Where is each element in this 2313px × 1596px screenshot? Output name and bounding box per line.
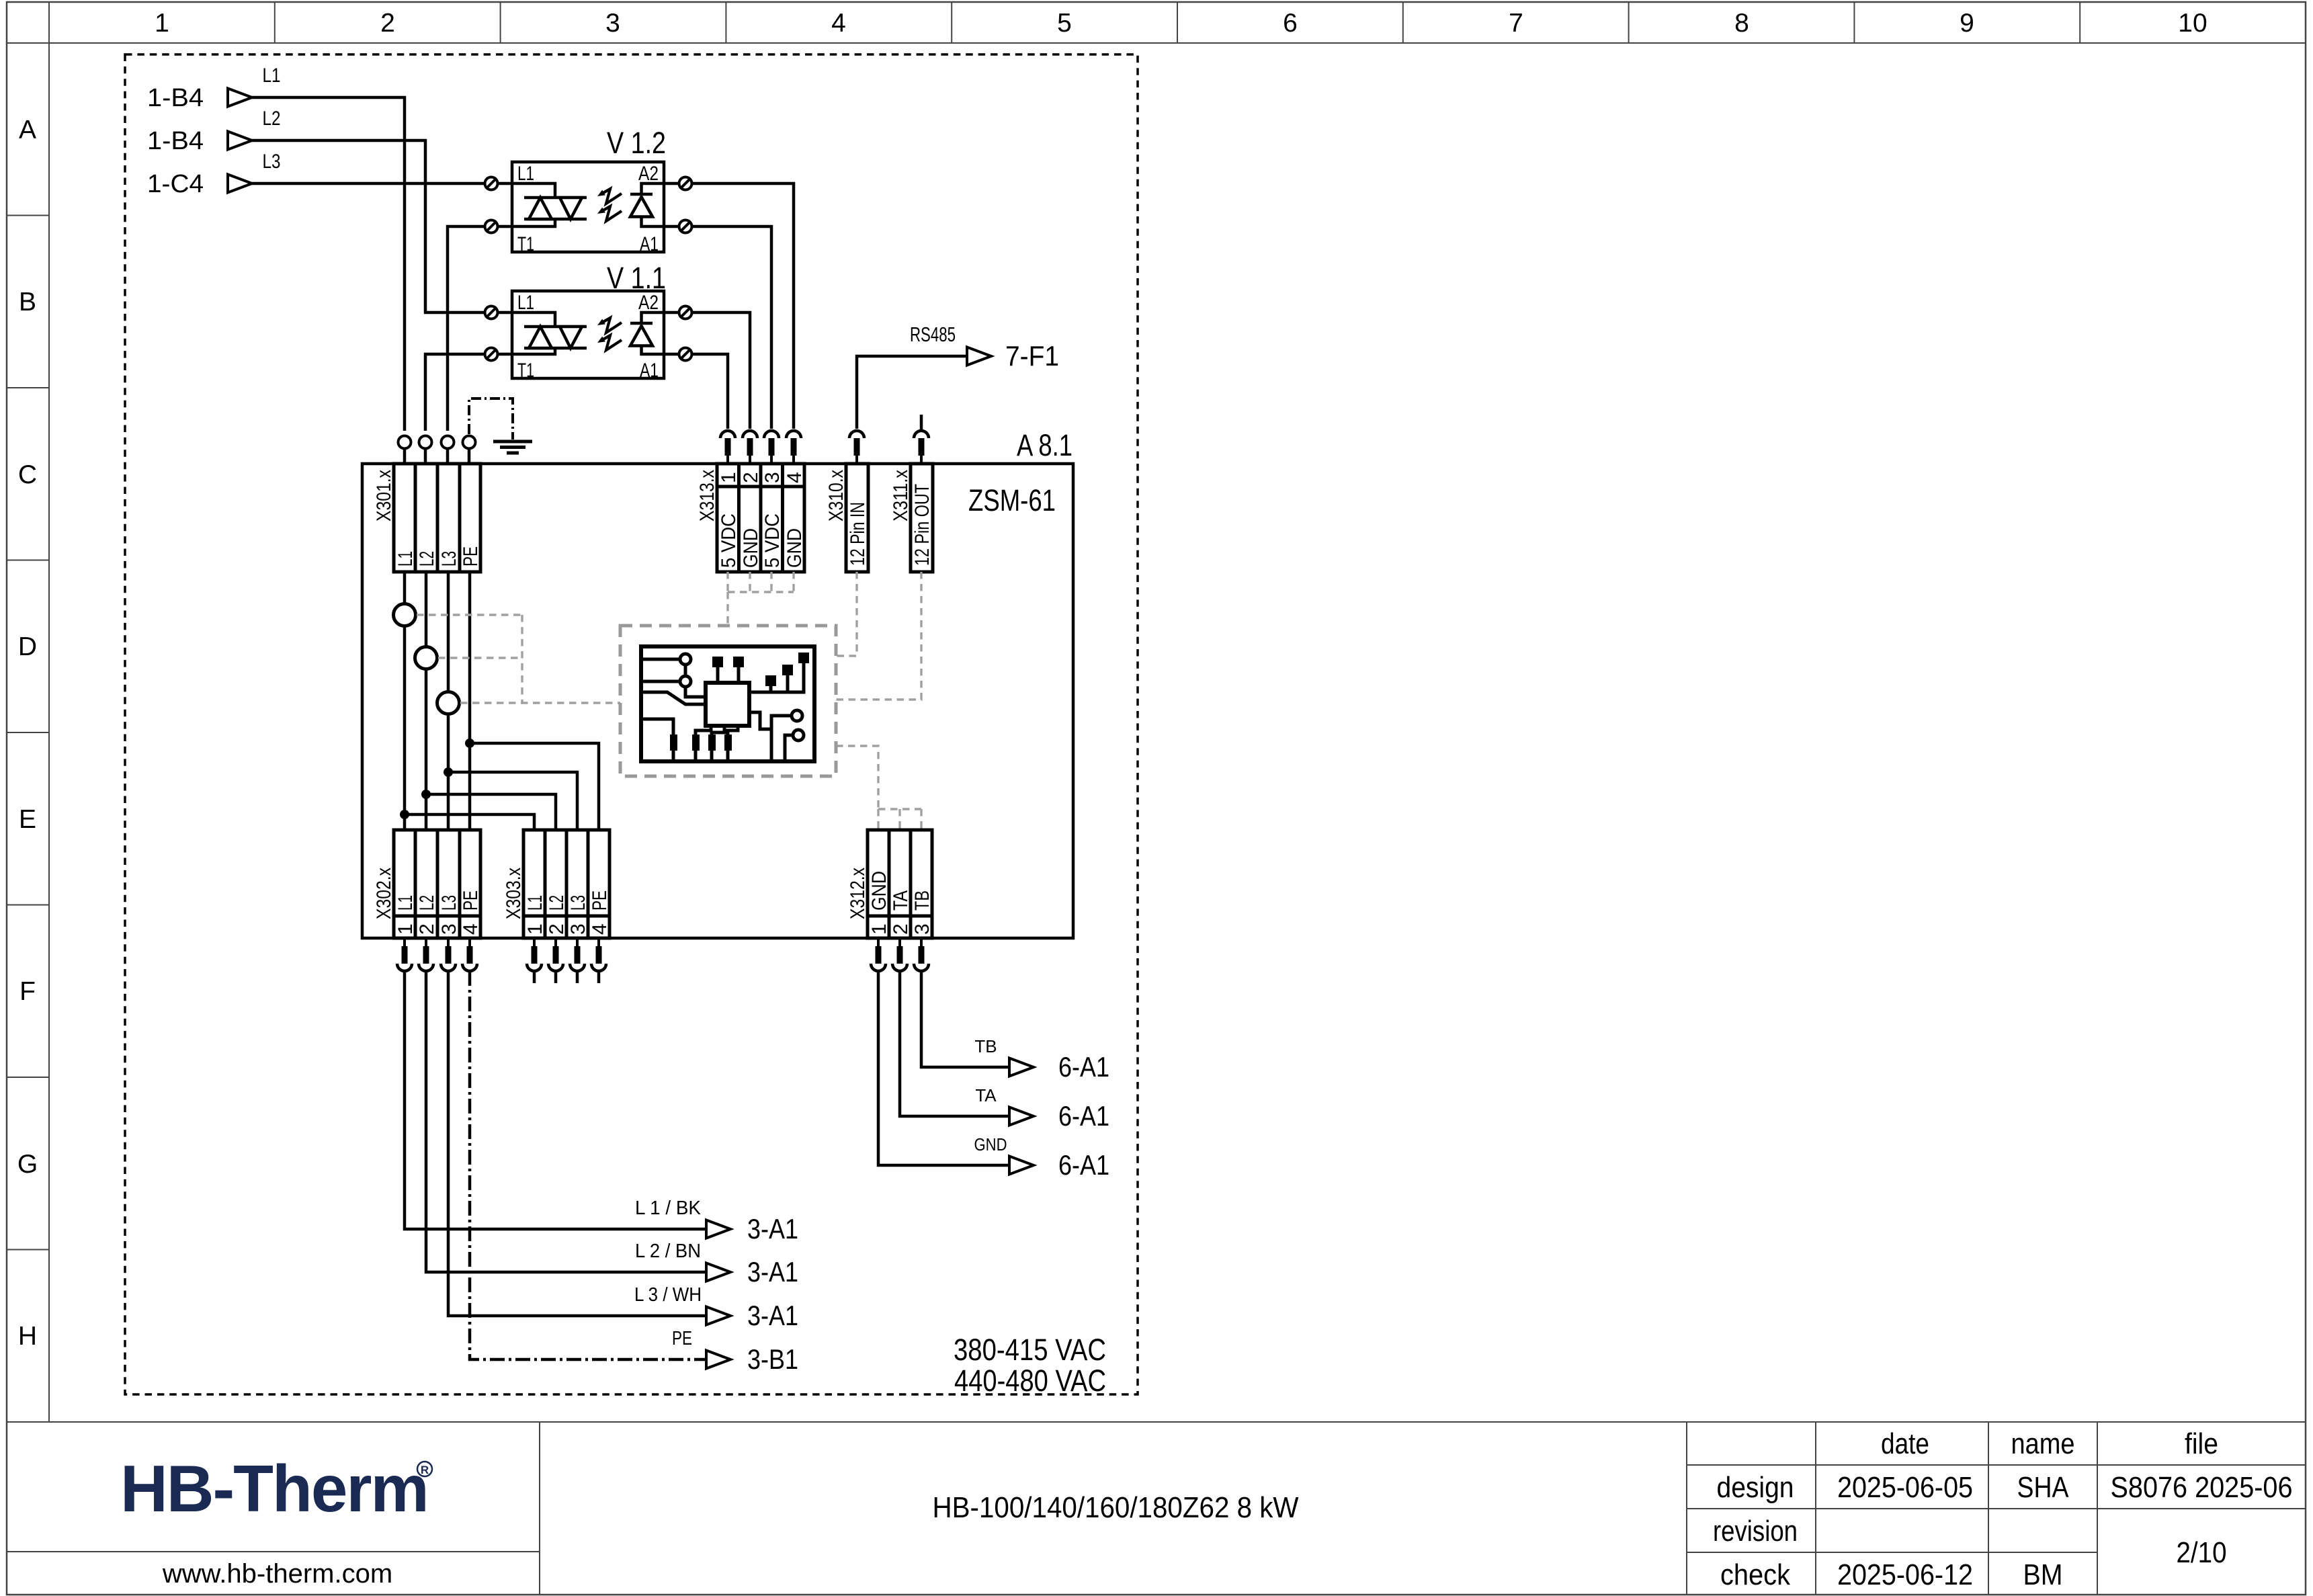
svg-text:BM: BM — [2023, 1558, 2063, 1591]
svg-text:revision: revision — [1713, 1515, 1798, 1548]
svg-text:B: B — [19, 288, 36, 317]
svg-text:2/10: 2/10 — [2177, 1536, 2227, 1569]
svg-text:X301.x: X301.x — [373, 470, 395, 521]
svg-text:1: 1 — [155, 9, 169, 38]
svg-text:1-B4: 1-B4 — [147, 127, 204, 155]
svg-text:L3: L3 — [438, 895, 460, 911]
svg-text:9: 9 — [1960, 9, 1974, 38]
svg-text:3: 3 — [438, 923, 460, 935]
svg-text:SHA: SHA — [2017, 1471, 2070, 1504]
svg-text:L2: L2 — [263, 108, 281, 130]
svg-text:GND: GND — [974, 1134, 1007, 1154]
svg-text:L1: L1 — [517, 163, 534, 185]
svg-text:A 8.1: A 8.1 — [1017, 428, 1073, 462]
svg-text:GND: GND — [784, 528, 806, 568]
svg-text:4: 4 — [784, 472, 806, 483]
svg-text:3: 3 — [605, 9, 620, 38]
svg-text:file: file — [2185, 1427, 2218, 1460]
svg-text:12 Pin OUT: 12 Pin OUT — [911, 484, 933, 566]
svg-text:TA: TA — [890, 890, 912, 911]
svg-text:HB-100/140/160/180Z62 8 kW: HB-100/140/160/180Z62 8 kW — [933, 1491, 1299, 1524]
svg-text:R: R — [421, 1464, 429, 1476]
svg-text:X311.x: X311.x — [890, 470, 912, 521]
svg-text:L3: L3 — [567, 895, 589, 911]
svg-text:check: check — [1720, 1558, 1791, 1591]
svg-text:3: 3 — [567, 923, 589, 935]
svg-text:L2: L2 — [416, 895, 438, 911]
svg-text:2: 2 — [546, 923, 568, 935]
svg-text:L 3 / WH: L 3 / WH — [634, 1284, 702, 1306]
svg-text:S8076 2025-06: S8076 2025-06 — [2111, 1471, 2293, 1504]
svg-text:1: 1 — [524, 923, 546, 935]
svg-text:G: G — [17, 1150, 38, 1179]
svg-text:2025-06-05: 2025-06-05 — [1837, 1471, 1973, 1504]
svg-text:4: 4 — [589, 923, 611, 935]
svg-text:4: 4 — [460, 923, 482, 935]
svg-text:A2: A2 — [638, 163, 659, 185]
svg-text:V 1.2: V 1.2 — [607, 126, 666, 160]
svg-text:5: 5 — [1057, 9, 1072, 38]
svg-text:X313.x: X313.x — [696, 470, 718, 521]
svg-text:7: 7 — [1509, 9, 1523, 38]
svg-text:date: date — [1881, 1427, 1929, 1460]
svg-text:8: 8 — [1734, 9, 1749, 38]
svg-text:2: 2 — [380, 9, 395, 38]
svg-text:3-A1: 3-A1 — [747, 1213, 798, 1245]
svg-text:L1: L1 — [263, 65, 281, 87]
svg-text:X302.x: X302.x — [373, 868, 395, 919]
svg-text:E: E — [19, 805, 36, 834]
svg-text:PE: PE — [672, 1328, 692, 1349]
svg-text:name: name — [2011, 1427, 2075, 1460]
svg-text:L1: L1 — [524, 895, 546, 911]
svg-text:2025-06-12: 2025-06-12 — [1837, 1558, 1973, 1591]
svg-text:L1: L1 — [394, 551, 417, 566]
svg-text:RS485: RS485 — [910, 323, 956, 346]
svg-text:2: 2 — [740, 472, 762, 483]
svg-text:5 VDC: 5 VDC — [761, 513, 784, 568]
svg-text:A: A — [19, 116, 36, 144]
svg-text:7-F1: 7-F1 — [1005, 340, 1059, 372]
svg-text:12 Pin IN: 12 Pin IN — [847, 502, 869, 566]
svg-text:6: 6 — [1283, 9, 1298, 38]
svg-text:10: 10 — [2178, 9, 2207, 38]
svg-text:6-A1: 6-A1 — [1058, 1100, 1109, 1132]
svg-text:L2: L2 — [416, 551, 438, 566]
svg-text:L 2 / BN: L 2 / BN — [635, 1241, 701, 1262]
svg-text:X312.x: X312.x — [847, 868, 869, 919]
svg-text:F: F — [19, 977, 36, 1006]
svg-text:L2: L2 — [546, 895, 568, 911]
svg-text:GND: GND — [740, 528, 762, 568]
svg-text:L 1 / BK: L 1 / BK — [635, 1198, 702, 1219]
svg-text:PE: PE — [460, 890, 482, 911]
svg-text:C: C — [18, 460, 37, 489]
svg-text:D: D — [18, 632, 37, 661]
svg-text:A2: A2 — [638, 292, 659, 314]
svg-text:6-A1: 6-A1 — [1058, 1149, 1109, 1181]
svg-text:design: design — [1717, 1471, 1794, 1504]
svg-text:2: 2 — [890, 923, 912, 935]
svg-text:1: 1 — [718, 472, 740, 483]
svg-text:L1: L1 — [517, 292, 534, 314]
svg-text:3-A1: 3-A1 — [747, 1300, 798, 1331]
svg-text:GND: GND — [868, 871, 890, 911]
svg-text:A1: A1 — [640, 233, 659, 255]
svg-text:3-A1: 3-A1 — [747, 1256, 798, 1288]
svg-text:3-B1: 3-B1 — [747, 1343, 798, 1375]
svg-text:T1: T1 — [517, 360, 534, 382]
svg-text:L3: L3 — [263, 151, 281, 173]
svg-text:3: 3 — [761, 472, 784, 483]
svg-text:5 VDC: 5 VDC — [718, 513, 740, 568]
svg-text:www.hb-therm.com: www.hb-therm.com — [162, 1559, 392, 1589]
svg-text:TB: TB — [974, 1036, 997, 1056]
svg-text:HB-Therm: HB-Therm — [120, 1452, 428, 1525]
svg-text:L1: L1 — [394, 895, 417, 911]
svg-text:4: 4 — [831, 9, 846, 38]
svg-text:H: H — [18, 1322, 37, 1351]
svg-text:A1: A1 — [640, 360, 659, 382]
svg-text:PE: PE — [589, 890, 611, 911]
svg-text:3: 3 — [911, 923, 933, 935]
svg-text:1: 1 — [394, 923, 417, 935]
svg-text:2: 2 — [416, 923, 438, 935]
svg-text:TB: TB — [911, 890, 933, 911]
svg-text:6-A1: 6-A1 — [1058, 1051, 1109, 1083]
svg-text:L3: L3 — [438, 551, 460, 566]
svg-text:ZSM-61: ZSM-61 — [968, 483, 1056, 517]
svg-text:1: 1 — [868, 923, 890, 935]
svg-text:X310.x: X310.x — [825, 470, 847, 521]
svg-text:TA: TA — [975, 1085, 997, 1105]
svg-text:1-C4: 1-C4 — [147, 170, 204, 198]
svg-text:T1: T1 — [517, 233, 534, 255]
svg-text:X303.x: X303.x — [503, 868, 525, 919]
svg-text:PE: PE — [460, 546, 482, 566]
svg-text:380-415 VAC: 380-415 VAC — [954, 1333, 1106, 1367]
svg-text:1-B4: 1-B4 — [147, 84, 204, 112]
svg-text:440-480 VAC: 440-480 VAC — [954, 1363, 1106, 1398]
